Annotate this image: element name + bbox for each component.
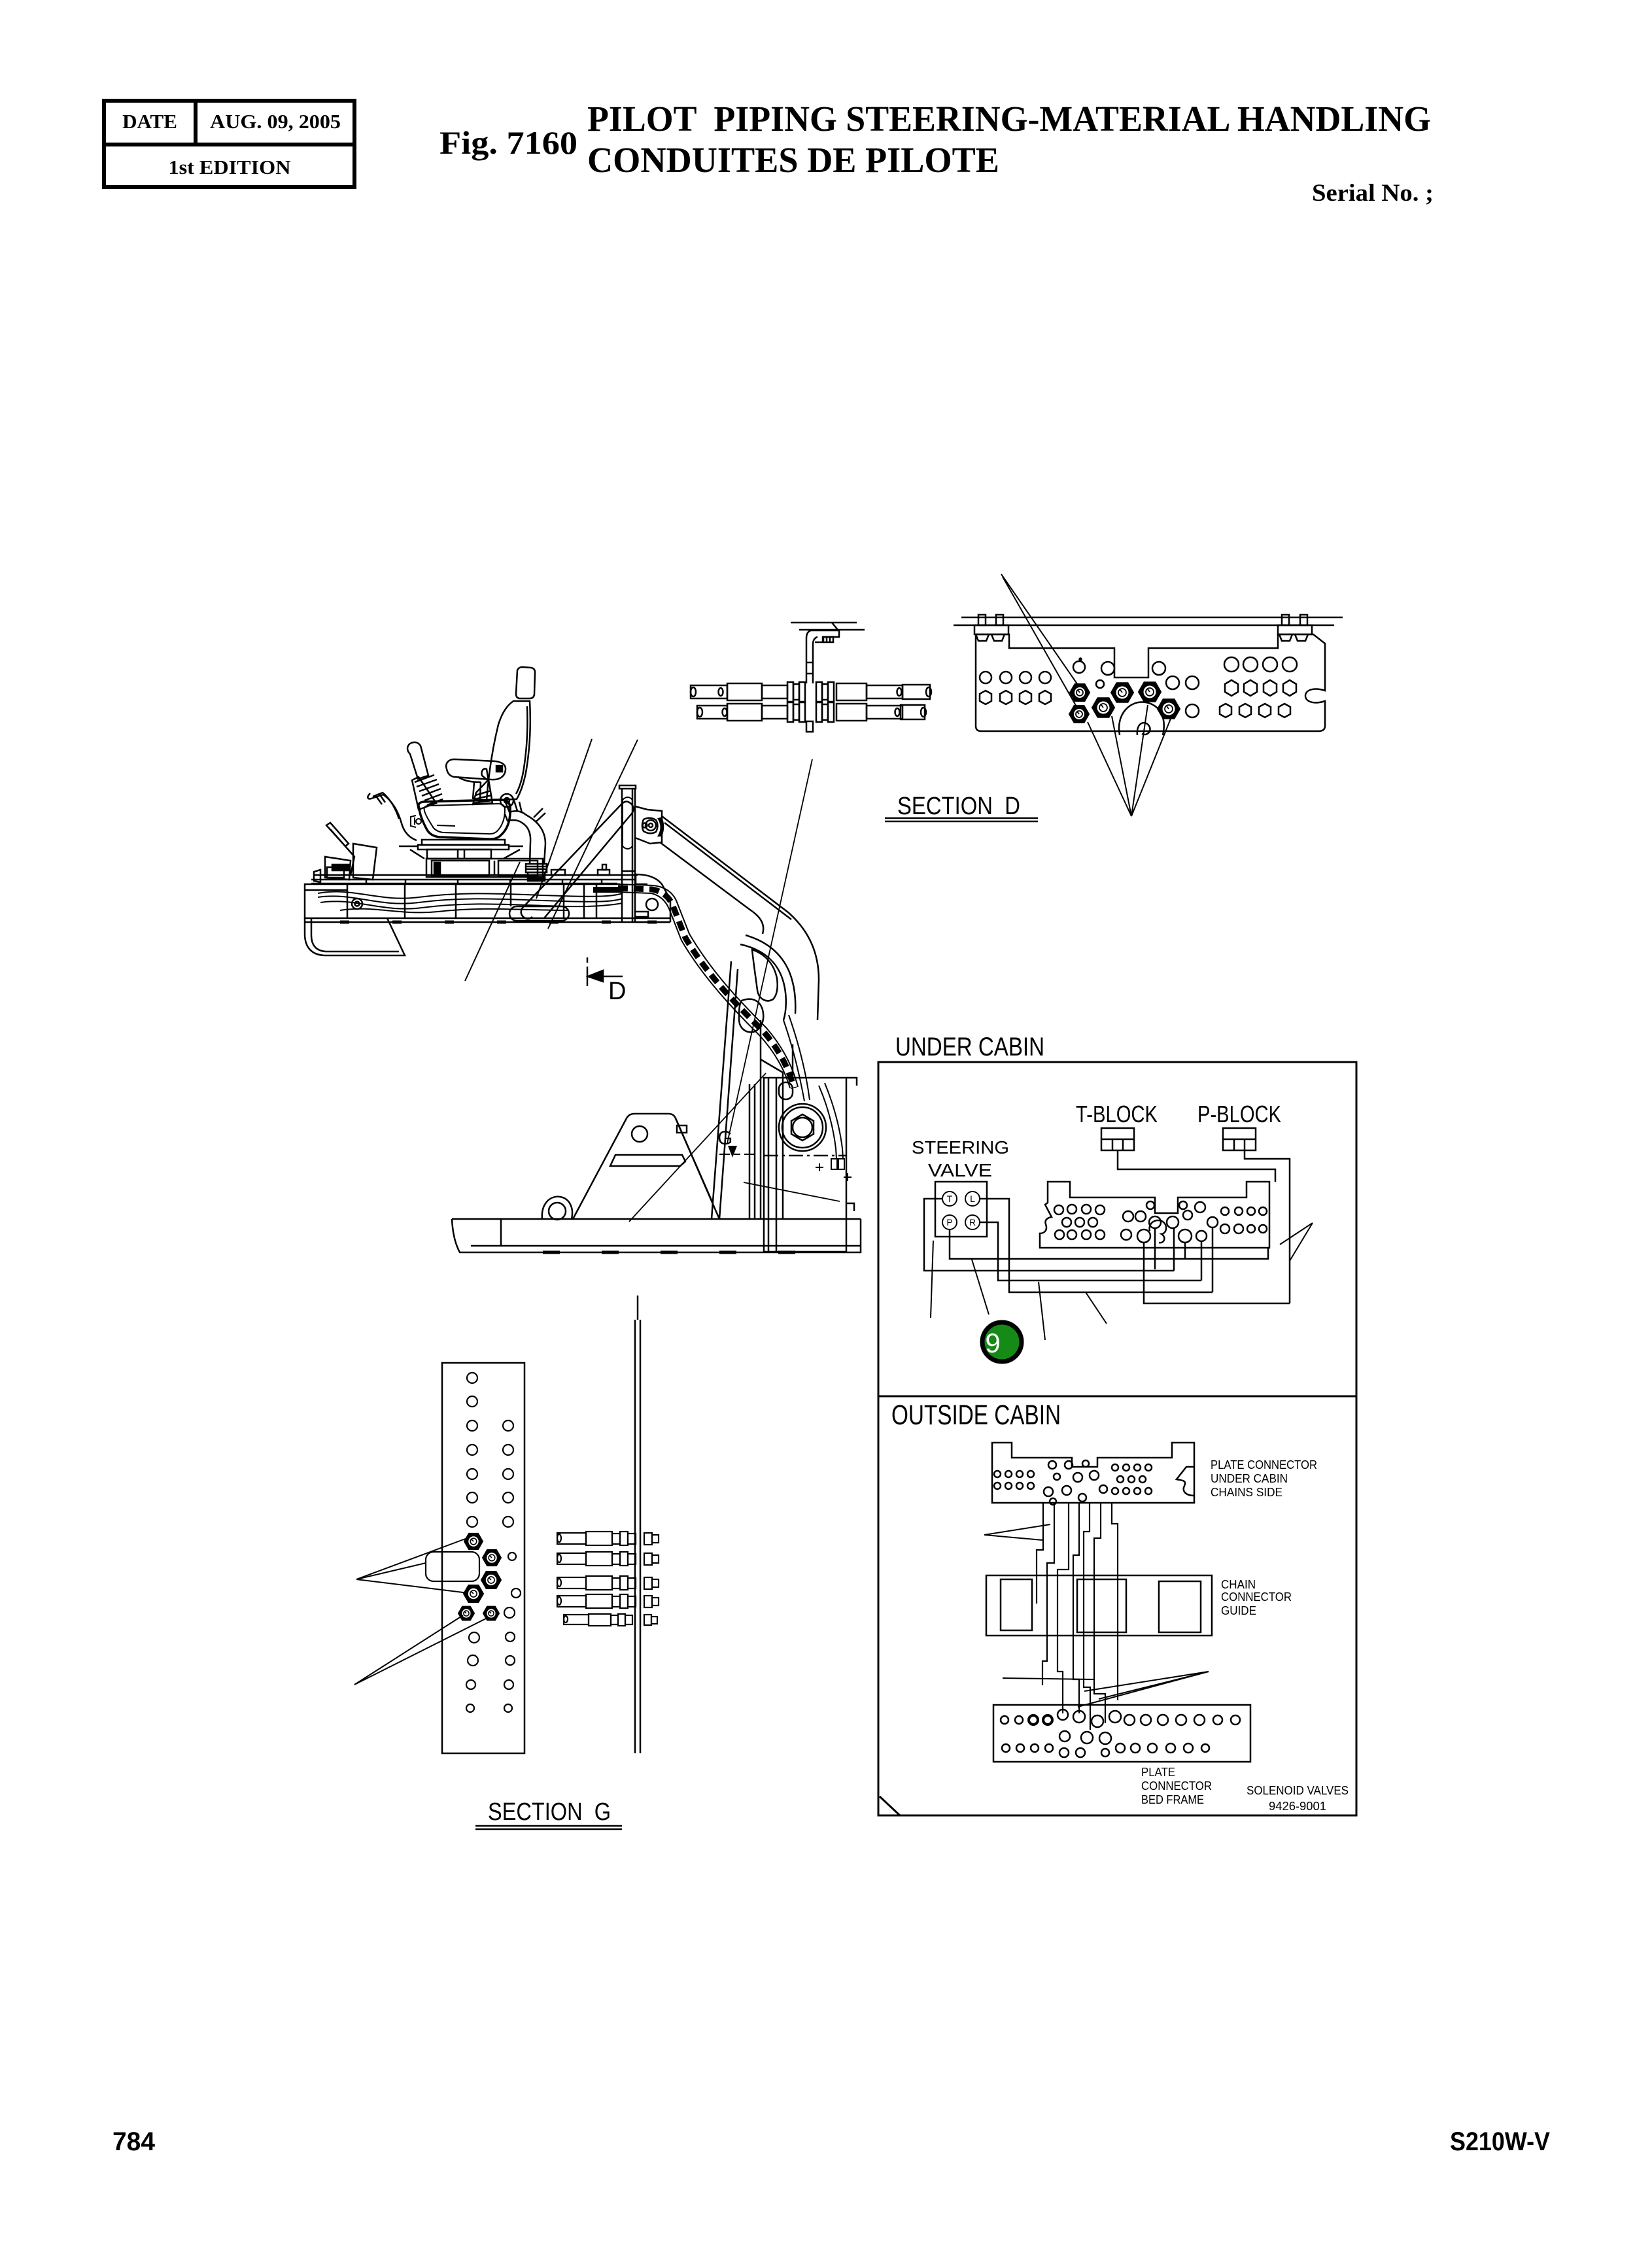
svg-text:CONNECTOR: CONNECTOR	[1221, 1590, 1292, 1604]
svg-text:CONNECTOR: CONNECTOR	[1141, 1779, 1212, 1793]
svg-text:PILOT PIPING STEERING-MATERIA: PILOT PIPING STEERING-MATERIAL HANDLING	[587, 99, 1431, 139]
svg-text:CONDUITES DE PILOTE: CONDUITES DE PILOTE	[587, 140, 999, 180]
svg-text:D: D	[608, 978, 626, 1005]
svg-text:T-BLOCK: T-BLOCK	[1076, 1101, 1158, 1127]
svg-text:VALVE: VALVE	[928, 1160, 992, 1180]
svg-text:CHAIN: CHAIN	[1221, 1578, 1256, 1591]
svg-text:STEERING: STEERING	[912, 1137, 1009, 1158]
svg-text:DATE: DATE	[122, 110, 177, 133]
svg-text:OUTSIDE CABIN: OUTSIDE CABIN	[891, 1399, 1061, 1431]
svg-text:UNDER CABIN: UNDER CABIN	[895, 1033, 1044, 1061]
svg-text:1st EDITION: 1st EDITION	[169, 156, 291, 179]
svg-text:L: L	[970, 1193, 975, 1204]
svg-text:Fig. 7160: Fig. 7160	[439, 124, 577, 161]
svg-text:S210W-V: S210W-V	[1450, 2127, 1550, 2156]
svg-text:SECTION D: SECTION D	[897, 793, 1020, 820]
svg-text:9: 9	[985, 1328, 1000, 1358]
svg-text:R: R	[969, 1217, 976, 1228]
svg-text:AUG. 09, 2005: AUG. 09, 2005	[210, 110, 341, 133]
svg-text:GUIDE: GUIDE	[1221, 1604, 1256, 1617]
svg-text:Serial No. ;: Serial No. ;	[1312, 180, 1434, 207]
svg-text:9426-9001: 9426-9001	[1269, 1800, 1326, 1813]
svg-text:PLATE CONNECTOR: PLATE CONNECTOR	[1211, 1458, 1317, 1471]
svg-text:P-BLOCK: P-BLOCK	[1197, 1101, 1281, 1127]
svg-text:T: T	[947, 1193, 953, 1204]
svg-text:SOLENOID VALVES: SOLENOID VALVES	[1247, 1784, 1349, 1797]
svg-text:784: 784	[112, 2127, 156, 2156]
svg-text:UNDER CABIN: UNDER CABIN	[1211, 1472, 1288, 1485]
svg-text:BED FRAME: BED FRAME	[1141, 1793, 1204, 1806]
svg-text:P: P	[946, 1217, 952, 1228]
svg-text:CHAINS SIDE: CHAINS SIDE	[1211, 1486, 1282, 1499]
svg-text:PLATE: PLATE	[1141, 1766, 1175, 1779]
svg-text:SECTION G: SECTION G	[488, 1798, 611, 1826]
